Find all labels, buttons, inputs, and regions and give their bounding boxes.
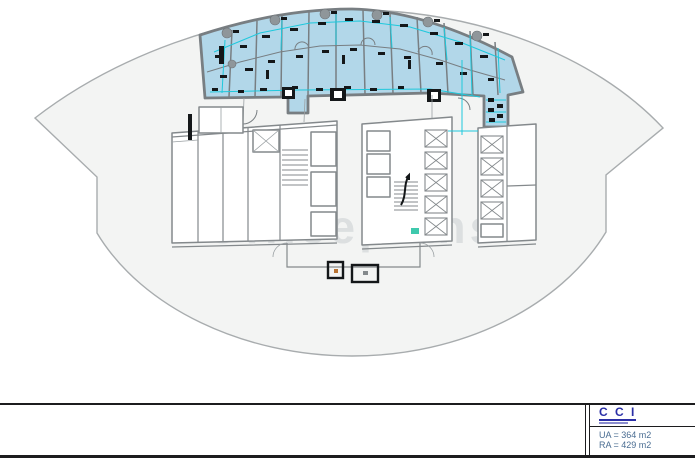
- title-block-divider: [589, 426, 695, 427]
- title-block-border-inner: [589, 403, 590, 458]
- floor-plan: Officeplans: [0, 0, 695, 404]
- logo-tagline: [599, 422, 628, 424]
- title-block-border-outer: [585, 403, 586, 458]
- frame-rule-top: [0, 403, 695, 405]
- core-right-block: [478, 124, 536, 247]
- company-logo: C C I: [599, 405, 636, 419]
- usable-area-label: UA = 364 m2: [599, 430, 651, 440]
- core-middle-block: [362, 117, 452, 249]
- accent-marker: [411, 228, 419, 234]
- frame-rule-bottom: [0, 455, 695, 458]
- drawing-sheet: Officeplans: [0, 0, 695, 464]
- rentable-area-label: RA = 429 m2: [599, 440, 651, 450]
- logo-underline: [599, 419, 636, 421]
